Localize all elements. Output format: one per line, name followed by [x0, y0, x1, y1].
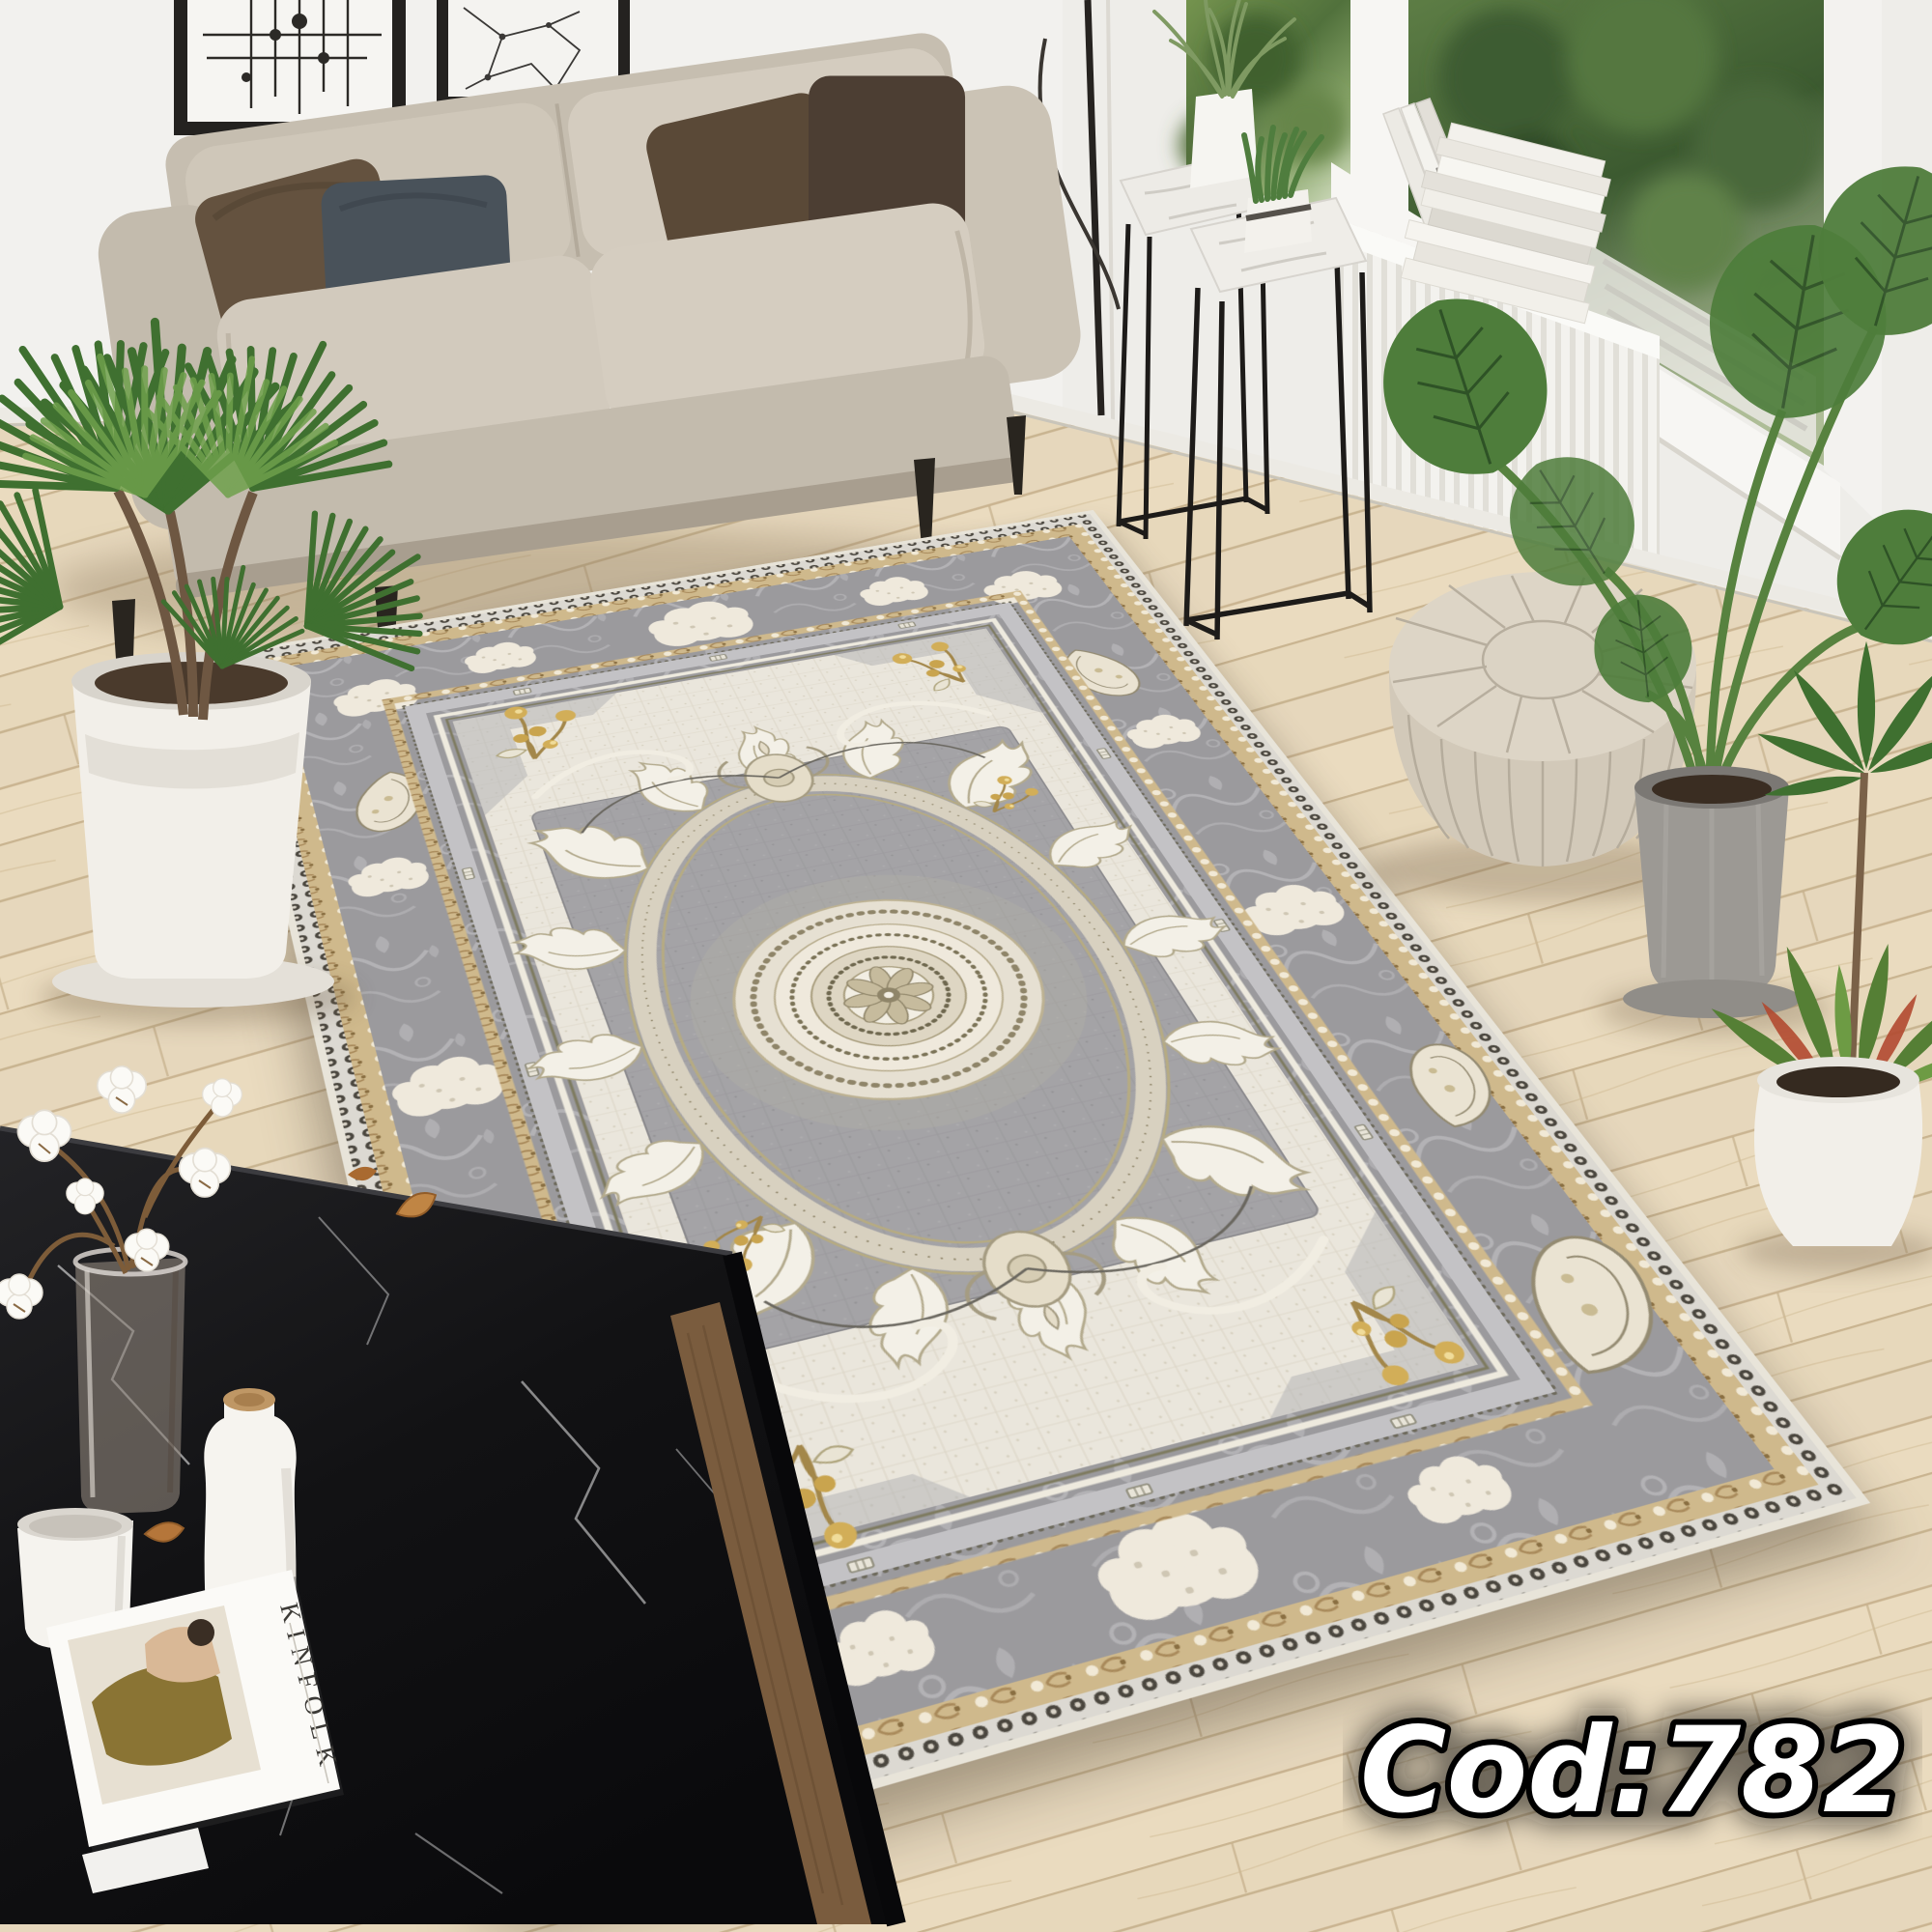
- living-room-rug-product-photo: Wrod: [0, 0, 1932, 1932]
- foreground-objects: KINFOLK: [0, 0, 1932, 1932]
- fan-palm-plant: [0, 284, 467, 1024]
- product-code-text: Cod:782: [1360, 1702, 1905, 1839]
- coffee-table: KINFOLK: [0, 1066, 896, 1924]
- small-tree-leaves: [1755, 641, 1932, 802]
- product-code-overlay: Cod:782 Cod:782: [1343, 1657, 1922, 1918]
- palm-pot: [72, 681, 311, 979]
- white-vase-pot: [1754, 1080, 1922, 1246]
- pouf-top-circle: [1483, 621, 1603, 698]
- monstera-plant: [1360, 146, 1932, 1035]
